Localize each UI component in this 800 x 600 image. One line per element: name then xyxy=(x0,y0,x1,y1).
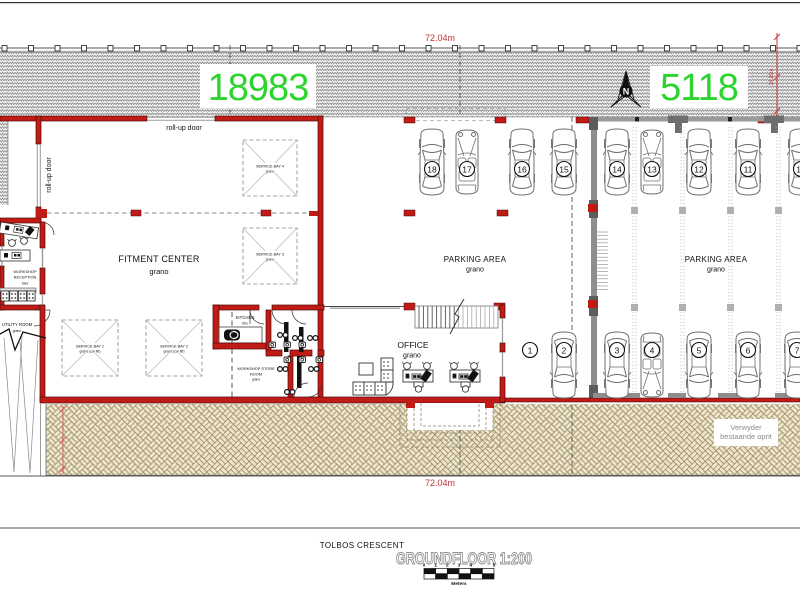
svg-text:PARKING AREA: PARKING AREA xyxy=(444,255,507,264)
svg-text:GROUNDFLOOR 1:200: GROUNDFLOOR 1:200 xyxy=(396,550,532,568)
svg-text:5: 5 xyxy=(697,345,702,355)
svg-text:1: 1 xyxy=(434,563,437,569)
svg-text:grano: grano xyxy=(266,258,275,262)
svg-text:grano: grano xyxy=(466,267,484,274)
svg-text:grand (car lift): grand (car lift) xyxy=(164,350,185,354)
svg-text:SERVICE BAY 4: SERVICE BAY 4 xyxy=(256,165,284,169)
svg-text:grano: grano xyxy=(707,267,725,274)
svg-text:Verwyder: Verwyder xyxy=(730,423,762,432)
svg-text:2: 2 xyxy=(562,345,567,355)
svg-text:10: 10 xyxy=(796,164,800,174)
svg-text:18.85m: 18.85m xyxy=(769,69,775,86)
svg-text:UTILITY ROOM: UTILITY ROOM xyxy=(2,322,33,327)
svg-text:14: 14 xyxy=(612,164,622,174)
svg-text:Stes: Stes xyxy=(22,282,29,286)
svg-text:72.04m: 72.04m xyxy=(425,478,455,488)
svg-text:4: 4 xyxy=(650,345,655,355)
svg-text:grano: grano xyxy=(149,267,168,276)
svg-text:bestaande oprit: bestaande oprit xyxy=(720,432,773,441)
svg-text:ROOM: ROOM xyxy=(250,372,262,377)
svg-text:WORKSHOP STORE: WORKSHOP STORE xyxy=(237,366,275,371)
svg-text:18983: 18983 xyxy=(208,67,309,109)
svg-text:grand (car lift): grand (car lift) xyxy=(80,350,101,354)
svg-text:SERVICE BAY 1: SERVICE BAY 1 xyxy=(76,345,104,349)
svg-text:6: 6 xyxy=(746,345,751,355)
svg-text:KITCHEN: KITCHEN xyxy=(236,315,255,320)
svg-text:18: 18 xyxy=(427,164,437,174)
svg-text:7: 7 xyxy=(795,345,800,355)
svg-text:RECEPTION: RECEPTION xyxy=(14,275,37,280)
svg-text:grano: grano xyxy=(403,353,421,360)
svg-text:16: 16 xyxy=(517,164,527,174)
svg-text:5: 5 xyxy=(493,563,496,569)
svg-text:FITMENT CENTER: FITMENT CENTER xyxy=(118,254,199,264)
svg-text:5118: 5118 xyxy=(660,67,738,109)
svg-text:4: 4 xyxy=(469,563,472,569)
svg-text:Meters: Meters xyxy=(451,581,467,587)
svg-text:15: 15 xyxy=(559,164,569,174)
svg-text:bbs: bbs xyxy=(242,322,248,326)
svg-text:12: 12 xyxy=(694,164,704,174)
svg-text:OFFICE: OFFICE xyxy=(397,340,428,350)
svg-text:SERVICE BAY 3: SERVICE BAY 3 xyxy=(256,253,284,257)
svg-text:grano: grano xyxy=(13,329,22,333)
svg-text:PARKING AREA: PARKING AREA xyxy=(685,255,748,264)
svg-text:11: 11 xyxy=(744,164,753,174)
svg-text:3: 3 xyxy=(615,345,620,355)
svg-text:grano: grano xyxy=(252,378,260,382)
svg-text:2: 2 xyxy=(446,563,449,569)
svg-text:N: N xyxy=(623,87,630,97)
svg-text:TOLBOS CRESCENT: TOLBOS CRESCENT xyxy=(320,541,405,550)
svg-text:roll-up door: roll-up door xyxy=(166,125,202,132)
svg-text:3: 3 xyxy=(458,563,461,569)
svg-text:roll-up door: roll-up door xyxy=(46,157,53,193)
svg-text:WORKSHOP: WORKSHOP xyxy=(13,269,37,274)
svg-text:1: 1 xyxy=(528,345,533,355)
svg-text:0: 0 xyxy=(423,563,426,569)
svg-text:17: 17 xyxy=(462,164,472,174)
svg-text:72.04m: 72.04m xyxy=(425,33,455,43)
svg-text:13: 13 xyxy=(647,164,657,174)
svg-text:grano: grano xyxy=(266,170,275,174)
svg-text:SERVICE BAY 2: SERVICE BAY 2 xyxy=(160,345,188,349)
